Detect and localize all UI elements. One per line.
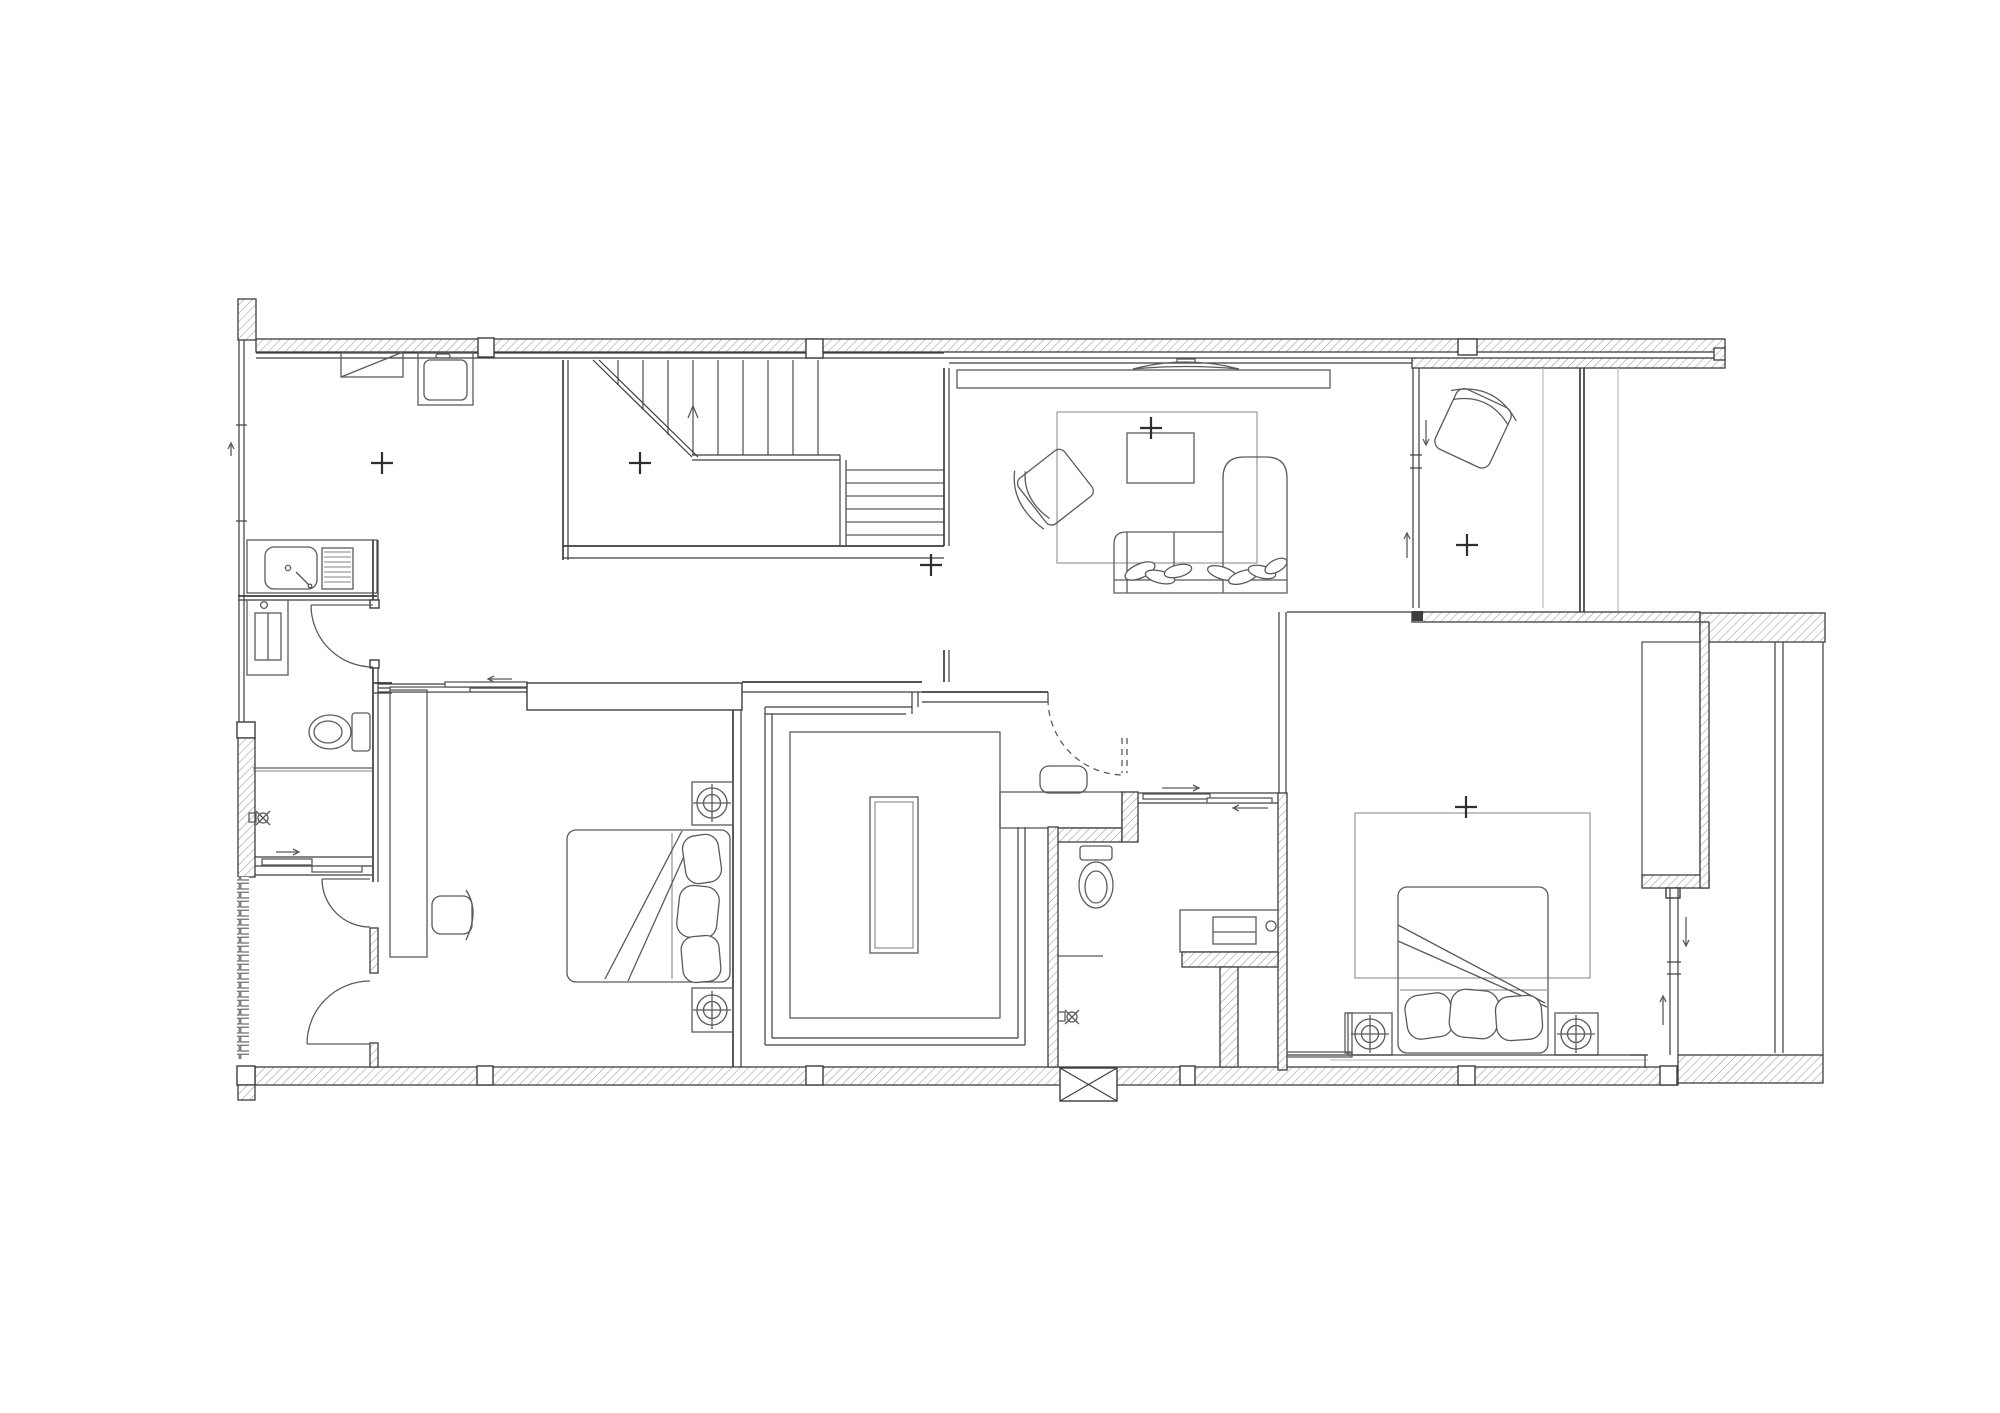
hinged-door xyxy=(322,879,370,927)
lounge-rooms xyxy=(1404,368,1700,622)
laundry-counter xyxy=(1180,910,1278,952)
shower-head xyxy=(1058,1010,1079,1024)
living-room xyxy=(957,359,1412,612)
tv xyxy=(1133,359,1239,369)
column-block xyxy=(477,1066,493,1085)
sofa-cushions xyxy=(1123,555,1290,587)
armchair xyxy=(1002,439,1096,533)
position-markers xyxy=(371,417,1478,818)
column-block xyxy=(1660,1066,1677,1085)
closet-inner-face xyxy=(790,732,1000,1018)
wc-door xyxy=(311,605,373,667)
bed xyxy=(1398,887,1548,1053)
bathroom-toilet xyxy=(1079,846,1113,908)
column-block xyxy=(806,339,823,358)
bed-rug xyxy=(1355,813,1590,978)
cross-marker xyxy=(1140,417,1162,439)
desk xyxy=(390,690,427,957)
walk-in-closet xyxy=(742,682,1025,1045)
lounge-chair xyxy=(1426,379,1521,474)
column-block xyxy=(1180,1066,1195,1085)
column-block xyxy=(1458,1066,1475,1085)
sliding-window xyxy=(1660,888,1689,1055)
low-cabinet xyxy=(1287,1013,1352,1057)
floor-plan-canvas xyxy=(0,0,2000,1413)
bathroom-zone xyxy=(922,612,1287,1101)
bedroom-1 xyxy=(374,676,742,1067)
bedside-lamp-symbol xyxy=(692,782,733,825)
staircase xyxy=(563,360,949,682)
wc-toilet xyxy=(309,713,370,751)
floor-plan-drawing xyxy=(0,0,2000,1413)
cross-marker xyxy=(629,452,651,474)
rug xyxy=(1057,412,1257,563)
tv-console xyxy=(957,370,1330,388)
column-block xyxy=(478,338,494,357)
bathroom-entry-door xyxy=(1048,699,1127,775)
wall-cabinet xyxy=(341,352,403,377)
bedside-lamp-symbol xyxy=(1348,1013,1392,1055)
sliding-door xyxy=(1138,785,1278,811)
column-block xyxy=(1458,339,1477,355)
pillows xyxy=(1403,988,1543,1042)
insulated-wall xyxy=(237,877,249,1059)
wardrobe xyxy=(1642,642,1700,877)
cross-marker xyxy=(1455,796,1477,818)
bedside-lamp-symbol xyxy=(1555,1013,1598,1055)
desk-chair xyxy=(432,890,473,940)
glazed-partition xyxy=(1404,368,1429,608)
ottoman xyxy=(1040,766,1087,793)
bedroom-2 xyxy=(1287,642,1709,1068)
left-bath-suite xyxy=(238,352,473,1067)
bed xyxy=(567,830,730,984)
hinged-door xyxy=(307,981,370,1044)
column-block xyxy=(806,1066,823,1085)
pillows xyxy=(675,833,723,984)
floor-hatch xyxy=(1060,1068,1117,1101)
cross-marker xyxy=(920,554,942,576)
bedside-lamp-symbol xyxy=(692,988,733,1032)
cross-marker xyxy=(371,452,393,474)
storage-cabinet xyxy=(247,600,288,675)
washing-machine xyxy=(418,352,473,405)
side-terrace xyxy=(1700,613,1825,1055)
sliding-door xyxy=(255,849,372,875)
drainboard xyxy=(322,548,353,589)
wall-end-block xyxy=(1412,611,1423,621)
sink-counter xyxy=(247,540,377,593)
coffee-table xyxy=(1127,433,1194,483)
vanity-counter xyxy=(1000,792,1122,828)
sofa xyxy=(1114,457,1289,593)
closet-wall-band xyxy=(527,683,742,710)
cross-marker xyxy=(1456,534,1478,556)
closet-island xyxy=(870,797,918,953)
